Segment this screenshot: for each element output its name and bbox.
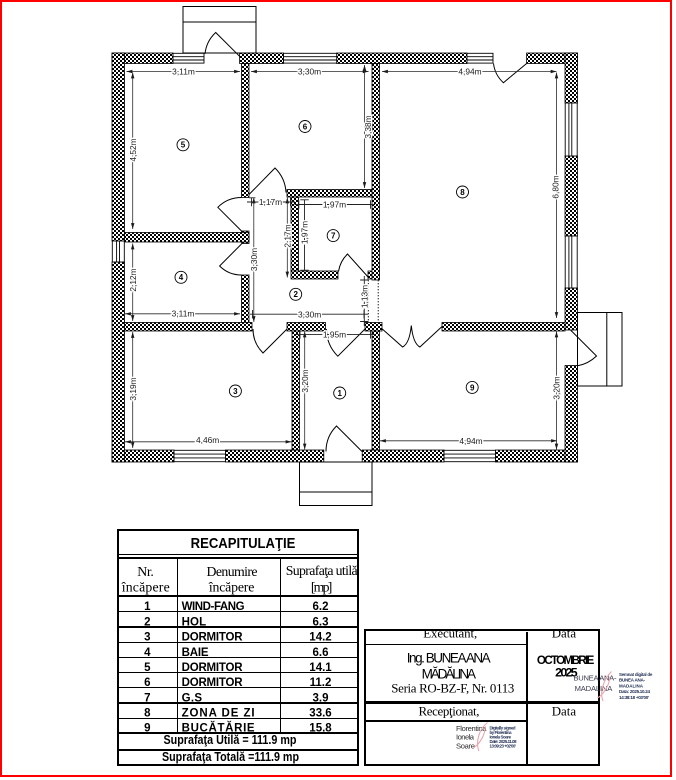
svg-text:2: 2	[293, 290, 298, 299]
svg-text:14:38:18 +03'00': 14:38:18 +03'00'	[619, 695, 649, 700]
svg-text:3: 3	[233, 387, 238, 396]
svg-text:3,30m: 3,30m	[298, 309, 321, 319]
svg-text:Ionela: Ionela	[456, 733, 475, 742]
svg-text:MADALINA: MADALINA	[619, 683, 644, 688]
svg-text:1,97m: 1,97m	[300, 221, 310, 244]
svg-text:3,30m: 3,30m	[249, 248, 259, 271]
svg-text:3,11m: 3,11m	[172, 309, 195, 319]
svg-text:1,13m: 1,13m	[359, 285, 369, 308]
svg-text:4,52m: 4,52m	[128, 138, 138, 161]
svg-text:1,17m: 1,17m	[259, 197, 282, 207]
svg-text:5: 5	[181, 141, 186, 150]
svg-text:2,17m: 2,17m	[282, 224, 292, 247]
svg-text:BUNEA ANA-: BUNEA ANA-	[574, 674, 617, 683]
svg-text:Soare: Soare	[456, 742, 475, 751]
svg-text:3,20m: 3,20m	[552, 376, 562, 399]
svg-text:3,20m: 3,20m	[300, 369, 310, 392]
svg-text:9: 9	[470, 383, 475, 392]
svg-text:13:09:23 +02'00': 13:09:23 +02'00'	[490, 744, 517, 749]
svg-text:1,97m: 1,97m	[323, 200, 346, 210]
svg-text:Data: 2025.10.24: Data: 2025.10.24	[619, 689, 650, 694]
svg-text:6: 6	[303, 122, 308, 131]
svg-text:3,11m: 3,11m	[172, 67, 195, 77]
svg-text:4: 4	[179, 273, 184, 282]
svg-text:4,94m: 4,94m	[458, 67, 481, 77]
svg-text:4,46m: 4,46m	[196, 435, 219, 445]
svg-text:1: 1	[337, 389, 342, 398]
svg-text:4,94m: 4,94m	[459, 436, 482, 446]
svg-text:3,19m: 3,19m	[128, 377, 138, 400]
svg-text:2,12m: 2,12m	[128, 268, 138, 291]
svg-text:3,30m: 3,30m	[298, 67, 321, 77]
svg-text:8: 8	[460, 188, 465, 197]
svg-text:3,38m: 3,38m	[363, 115, 373, 138]
svg-text:6,80m: 6,80m	[551, 175, 561, 198]
svg-text:1,95m: 1,95m	[323, 330, 346, 340]
svg-text:BUNEA ANA-: BUNEA ANA-	[619, 678, 646, 683]
svg-text:7: 7	[331, 232, 336, 241]
svg-text:Semnat digital de: Semnat digital de	[619, 672, 653, 677]
